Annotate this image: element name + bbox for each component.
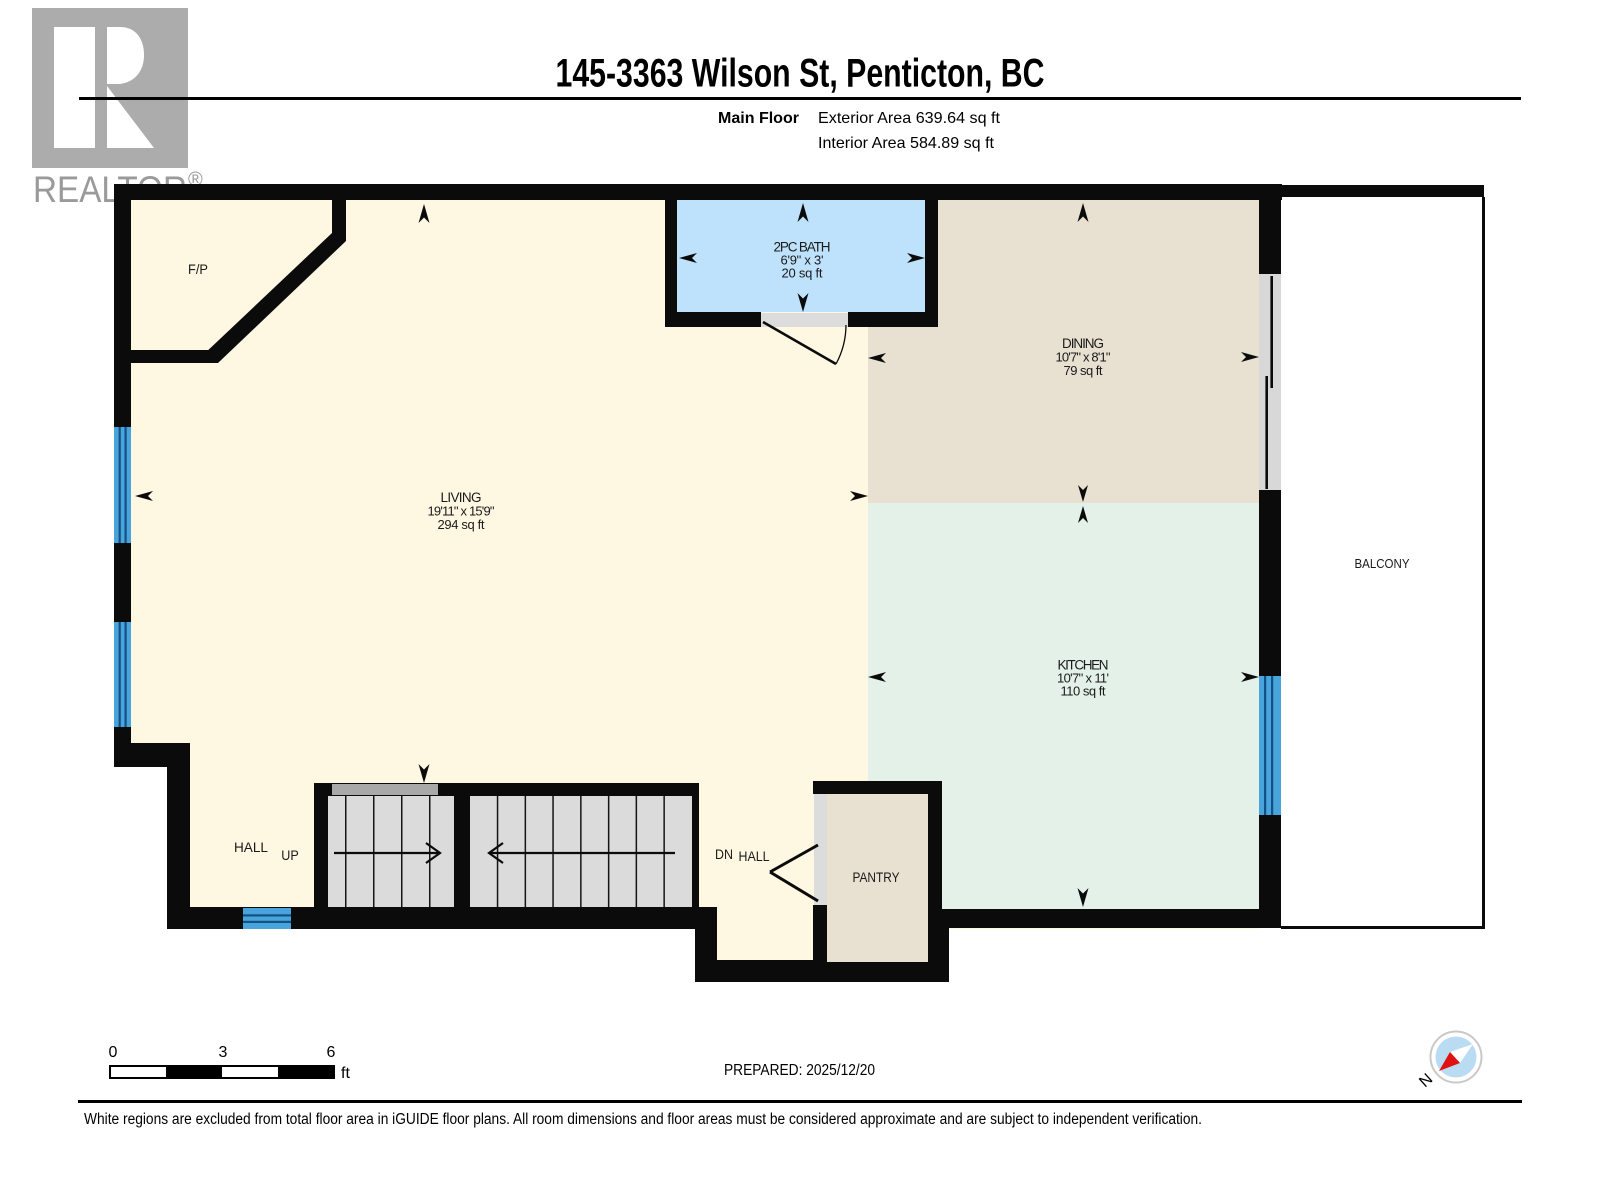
svg-text:79 sq ft: 79 sq ft xyxy=(1064,363,1103,378)
svg-text:294 sq ft: 294 sq ft xyxy=(438,517,485,532)
svg-text:HALL: HALL xyxy=(234,840,268,855)
svg-text:Main Floor: Main Floor xyxy=(718,110,799,127)
svg-text:20 sq ft: 20 sq ft xyxy=(782,266,823,281)
svg-text:Exterior Area 639.64 sq ft: Exterior Area 639.64 sq ft xyxy=(818,110,1001,127)
svg-text:HALL: HALL xyxy=(739,849,770,864)
svg-text:PANTRY: PANTRY xyxy=(853,870,900,885)
svg-text:145-3363 Wilson St, Penticton,: 145-3363 Wilson St, Penticton, BC xyxy=(556,52,1045,96)
svg-text:UP: UP xyxy=(281,848,299,863)
svg-text:0: 0 xyxy=(109,1044,118,1061)
svg-text:6: 6 xyxy=(327,1044,336,1061)
svg-text:PREPARED: 2025/12/20: PREPARED: 2025/12/20 xyxy=(724,1062,875,1079)
svg-text:Interior Area 584.89 sq ft: Interior Area 584.89 sq ft xyxy=(818,135,995,152)
svg-text:DN: DN xyxy=(715,847,733,862)
svg-text:BALCONY: BALCONY xyxy=(1355,556,1410,571)
svg-text:110 sq ft: 110 sq ft xyxy=(1061,684,1106,699)
svg-text:F/P: F/P xyxy=(188,262,208,277)
svg-text:3: 3 xyxy=(219,1044,228,1061)
svg-text:ft: ft xyxy=(341,1065,350,1082)
svg-text:White regions are excluded fro: White regions are excluded from total fl… xyxy=(84,1111,1202,1128)
